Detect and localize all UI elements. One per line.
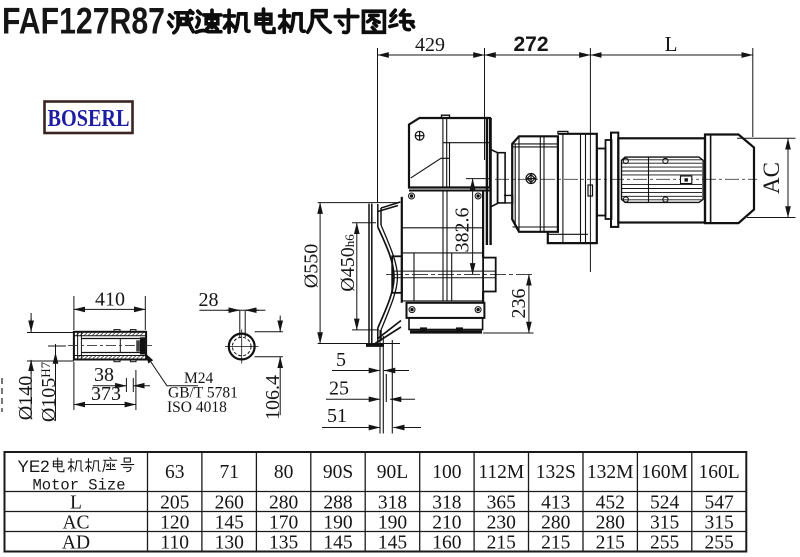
svg-text:71: 71	[219, 462, 239, 483]
svg-text:145: 145	[215, 513, 244, 534]
svg-text:160M: 160M	[641, 462, 688, 483]
svg-text:106.4: 106.4	[262, 375, 284, 420]
svg-text:112M: 112M	[478, 462, 524, 483]
svg-text:215: 215	[596, 533, 625, 554]
svg-text:90S: 90S	[323, 462, 353, 483]
svg-text:Ø140: Ø140	[15, 376, 37, 420]
svg-text:BOSERL: BOSERL	[48, 106, 130, 132]
svg-text:190: 190	[378, 513, 407, 534]
svg-text:452: 452	[596, 493, 625, 514]
svg-text:100: 100	[432, 462, 461, 483]
svg-text:315: 315	[650, 513, 679, 534]
svg-text:132S: 132S	[536, 462, 576, 483]
svg-text:373: 373	[91, 383, 121, 405]
svg-text:AD: AD	[62, 533, 90, 554]
svg-text:130: 130	[215, 533, 244, 554]
svg-text:Ø105H7: Ø105H7	[38, 361, 60, 422]
svg-text:272: 272	[513, 33, 548, 56]
svg-text:120: 120	[160, 513, 189, 534]
svg-text:255: 255	[704, 533, 733, 554]
svg-text:382.6: 382.6	[452, 208, 474, 253]
svg-text:255: 255	[650, 533, 679, 554]
svg-text:288: 288	[323, 493, 352, 514]
svg-text:230: 230	[487, 513, 516, 534]
svg-text:5: 5	[336, 349, 346, 371]
svg-text:315: 315	[704, 513, 733, 534]
svg-text:110: 110	[160, 533, 189, 554]
svg-text:318: 318	[432, 493, 461, 514]
svg-text:L: L	[665, 32, 678, 56]
svg-text:ISO 4018: ISO 4018	[167, 399, 227, 416]
svg-text:170: 170	[269, 513, 298, 534]
svg-text:YE2: YE2	[18, 457, 50, 476]
svg-text:AC: AC	[759, 162, 784, 194]
svg-text:547: 547	[704, 493, 734, 514]
svg-text:63: 63	[165, 462, 185, 483]
svg-text:280: 280	[269, 493, 298, 514]
svg-text:190: 190	[323, 513, 352, 534]
svg-text:90L: 90L	[377, 462, 408, 483]
svg-text:205: 205	[160, 493, 189, 514]
svg-text:524: 524	[650, 493, 680, 514]
svg-text:L: L	[70, 493, 82, 514]
svg-text:145: 145	[323, 533, 352, 554]
svg-text:145: 145	[378, 533, 407, 554]
svg-text:Ø450h6: Ø450h6	[337, 234, 359, 292]
svg-text:210: 210	[432, 513, 461, 534]
svg-text:318: 318	[378, 493, 407, 514]
svg-text:410: 410	[95, 289, 125, 311]
svg-text:160: 160	[432, 533, 461, 554]
svg-text:AC: AC	[62, 513, 89, 534]
svg-text:80: 80	[274, 462, 294, 483]
svg-text:28: 28	[199, 289, 219, 311]
svg-text:160L: 160L	[699, 462, 740, 483]
svg-text:429: 429	[415, 34, 445, 56]
svg-text:51: 51	[327, 405, 347, 427]
svg-text:215: 215	[541, 533, 570, 554]
svg-text:280: 280	[541, 513, 570, 534]
svg-text:135: 135	[269, 533, 298, 554]
svg-text:236: 236	[508, 289, 530, 319]
svg-text:280: 280	[596, 513, 625, 534]
svg-text:Ø550: Ø550	[301, 244, 323, 288]
svg-text:25: 25	[329, 378, 349, 400]
svg-text:132M: 132M	[587, 462, 634, 483]
svg-text:365: 365	[487, 493, 516, 514]
svg-text:260: 260	[215, 493, 244, 514]
svg-text:215: 215	[487, 533, 516, 554]
svg-text:FAF127R87: FAF127R87	[2, 1, 165, 42]
svg-text:413: 413	[541, 493, 570, 514]
